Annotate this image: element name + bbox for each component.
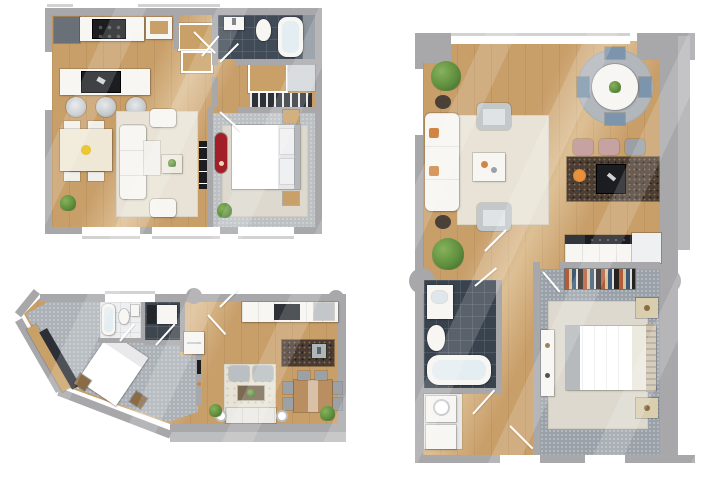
dining-chair: [639, 77, 651, 97]
window: [585, 455, 625, 463]
shower-tray: [157, 305, 177, 324]
bar-stool: [599, 139, 619, 155]
outer-wall-right: [315, 8, 322, 234]
outer-wall-right-ledge: [678, 36, 690, 250]
interior-wall: [174, 15, 179, 49]
interior-wall: [560, 262, 660, 269]
bed-pillow: [280, 129, 294, 154]
bar-stool: [625, 139, 645, 155]
nightstand-lamp: [644, 305, 650, 311]
window: [82, 227, 140, 234]
armchair: [229, 366, 249, 381]
outer-wall-right: [660, 36, 678, 463]
wall-candles: [197, 382, 201, 386]
toilet: [119, 309, 129, 324]
plant: [209, 404, 222, 417]
toilet: [427, 325, 445, 351]
dresser: [541, 330, 554, 396]
window-band: [445, 36, 630, 44]
bathtub-basin: [282, 21, 299, 53]
stove: [93, 20, 125, 38]
armchair: [253, 366, 273, 381]
window-sill: [82, 236, 140, 239]
floorplan-3: [20, 288, 350, 450]
window: [415, 69, 423, 135]
table-runner: [308, 380, 318, 412]
nightstand: [283, 192, 299, 205]
dresser-decor: [545, 343, 550, 348]
fruit-bowl: [573, 169, 586, 182]
range: [274, 304, 300, 320]
outer-wall-left: [45, 8, 52, 234]
sink-basin: [432, 291, 447, 303]
floorplan-1: [45, 8, 322, 242]
window-sill: [152, 236, 220, 239]
dining-chair: [577, 77, 589, 97]
dining-chair: [64, 172, 80, 181]
bed-pillow: [280, 159, 294, 184]
closet-shelf: [250, 65, 286, 91]
floor-plan-sheet: [0, 0, 720, 480]
kitchen-island: [282, 340, 334, 366]
sink-faucet: [317, 347, 321, 354]
window: [45, 52, 52, 110]
side-table: [435, 95, 451, 109]
red-dresser: [215, 133, 227, 173]
wall-column: [186, 288, 202, 304]
dining-chair: [283, 398, 293, 410]
dining-chair: [283, 382, 293, 394]
refrigerator: [632, 233, 661, 263]
window: [238, 227, 294, 234]
dining-chair: [333, 398, 342, 410]
bathroom-sink: [131, 305, 139, 316]
dining-chair: [605, 113, 625, 125]
washer-drum: [435, 401, 448, 414]
centerpiece-plant: [609, 81, 621, 93]
plant: [431, 61, 461, 91]
dining-chair: [333, 382, 342, 394]
bed-headboard: [646, 324, 656, 392]
window-sill: [238, 236, 294, 239]
cabinet-shelf: [150, 21, 168, 34]
interior-wall: [141, 302, 145, 340]
armchair-seat: [483, 109, 505, 125]
radiator: [250, 93, 312, 107]
table-decor: [481, 161, 488, 168]
dryer: [426, 425, 456, 449]
interior-wall: [212, 77, 218, 107]
outer-wall-bottom: [415, 455, 695, 463]
flower-vase: [81, 145, 91, 155]
outer-wall-right: [338, 294, 346, 432]
plant: [432, 238, 464, 270]
floorplan-2: [415, 33, 695, 463]
bathtub-basin: [432, 360, 486, 380]
dresser-knob: [219, 161, 224, 166]
sofa-chaise: [144, 141, 160, 175]
bar-stool: [66, 97, 86, 117]
terrace-ledge: [170, 432, 346, 442]
armchair: [150, 199, 176, 217]
table-decor: [491, 167, 497, 173]
sink-faucet: [232, 18, 236, 25]
bar-stool: [573, 139, 593, 155]
armchair: [150, 109, 176, 127]
window: [152, 227, 220, 234]
table-plant: [247, 389, 255, 397]
interior-wall: [145, 340, 183, 345]
wall-tv: [197, 360, 201, 374]
armchair-seat: [483, 210, 505, 226]
outer-wall-bottom: [170, 424, 346, 432]
table-plant: [168, 159, 176, 167]
plant: [320, 406, 335, 421]
entry-bench: [183, 53, 211, 71]
dining-chair: [315, 371, 327, 380]
side-table: [435, 215, 451, 229]
interior-wall: [496, 280, 502, 388]
plant: [60, 195, 76, 211]
sofa-pillow-orange: [429, 128, 439, 138]
closet-shelf-line: [187, 342, 201, 344]
dresser-decor: [545, 373, 550, 378]
dining-chair: [605, 47, 625, 59]
interior-wall: [533, 262, 540, 455]
window-sill: [47, 4, 73, 7]
window-sill: [138, 4, 220, 7]
window: [105, 294, 155, 302]
plant: [217, 203, 232, 218]
dining-chair: [298, 371, 310, 380]
nightstand: [283, 110, 299, 123]
refrigerator: [54, 17, 80, 43]
sofa: [226, 408, 276, 423]
sofa-pillow-orange: [429, 166, 439, 176]
wardrobe-clothes: [565, 269, 635, 289]
cooktop: [585, 235, 630, 244]
bathtub-basin: [104, 307, 113, 332]
interior-wall: [236, 59, 315, 65]
closet: [288, 65, 315, 91]
toilet: [256, 19, 271, 41]
steel-cabinet: [314, 303, 334, 320]
coffee-table: [473, 153, 505, 181]
bed-fold-lines: [582, 326, 630, 390]
dining-chair: [88, 172, 104, 181]
bathroom-floor-light: [303, 15, 315, 59]
shower-cabinet: [147, 305, 156, 324]
bar-stool: [96, 97, 116, 117]
side-lamp: [278, 412, 286, 420]
outer-wall-top: [45, 8, 322, 15]
window: [500, 455, 540, 463]
nightstand-lamp: [644, 405, 650, 411]
sofa: [120, 125, 146, 199]
